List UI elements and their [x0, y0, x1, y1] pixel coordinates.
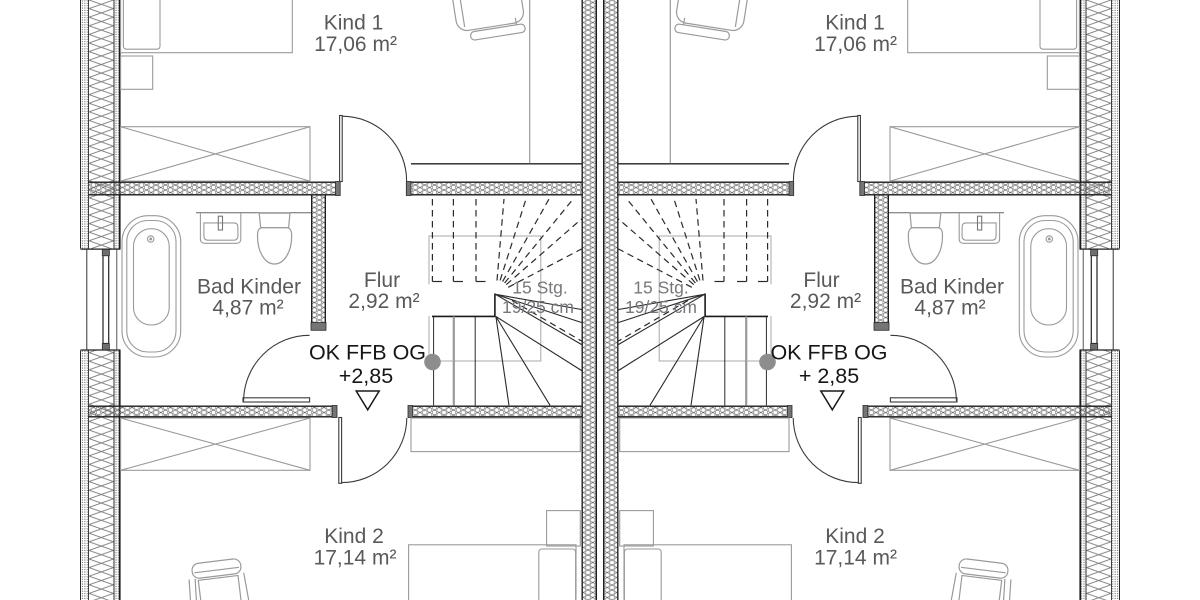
- svg-text:+ 2,85: + 2,85: [799, 364, 859, 388]
- svg-text:15 Stg.: 15 Stg.: [512, 278, 567, 298]
- svg-text:Bad Kinder: Bad Kinder: [900, 276, 1004, 299]
- svg-text:Flur: Flur: [364, 269, 400, 292]
- svg-text:Kind 1: Kind 1: [825, 12, 885, 35]
- svg-text:Kind 2: Kind 2: [825, 525, 885, 548]
- svg-text:Bad Kinder: Bad Kinder: [197, 276, 301, 299]
- svg-text:4,87 m²: 4,87 m²: [212, 297, 283, 320]
- svg-text:2,92 m²: 2,92 m²: [348, 290, 419, 313]
- svg-text:15 Stg.: 15 Stg.: [633, 278, 688, 298]
- svg-text:Kind 2: Kind 2: [324, 525, 384, 548]
- svg-text:OK FFB OG: OK FFB OG: [309, 341, 426, 365]
- svg-text:Kind 1: Kind 1: [324, 12, 384, 35]
- svg-text:Flur: Flur: [803, 269, 839, 292]
- svg-text:2,92 m²: 2,92 m²: [790, 290, 861, 313]
- svg-text:19/25 cm: 19/25 cm: [502, 297, 574, 317]
- svg-text:4,87 m²: 4,87 m²: [914, 297, 985, 320]
- svg-text:17,06 m²: 17,06 m²: [814, 33, 897, 56]
- svg-text:17,06 m²: 17,06 m²: [314, 33, 397, 56]
- svg-text:+2,85: +2,85: [339, 364, 393, 388]
- svg-text:OK FFB OG: OK FFB OG: [770, 341, 887, 365]
- svg-text:19/25 cm: 19/25 cm: [625, 297, 697, 317]
- svg-text:17,14 m²: 17,14 m²: [314, 547, 397, 570]
- svg-text:17,14 m²: 17,14 m²: [814, 547, 897, 570]
